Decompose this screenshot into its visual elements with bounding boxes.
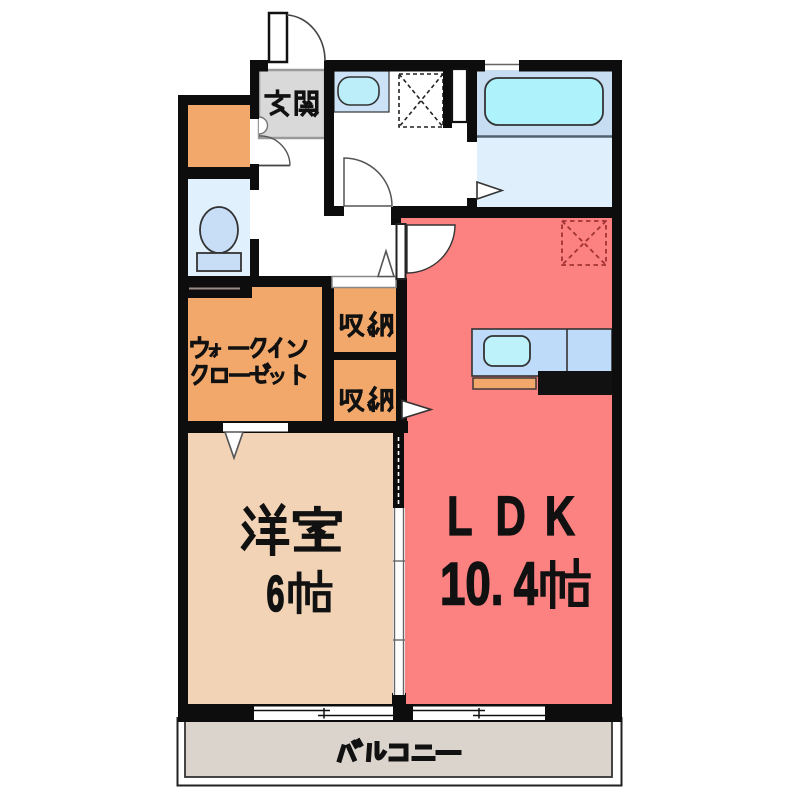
- svg-text:K: K: [545, 485, 576, 547]
- svg-text:10.: 10.: [440, 552, 503, 618]
- svg-text:L: L: [447, 485, 473, 547]
- svg-text:6: 6: [266, 566, 284, 623]
- svg-text:4: 4: [514, 550, 539, 618]
- svg-text:D: D: [496, 485, 526, 547]
